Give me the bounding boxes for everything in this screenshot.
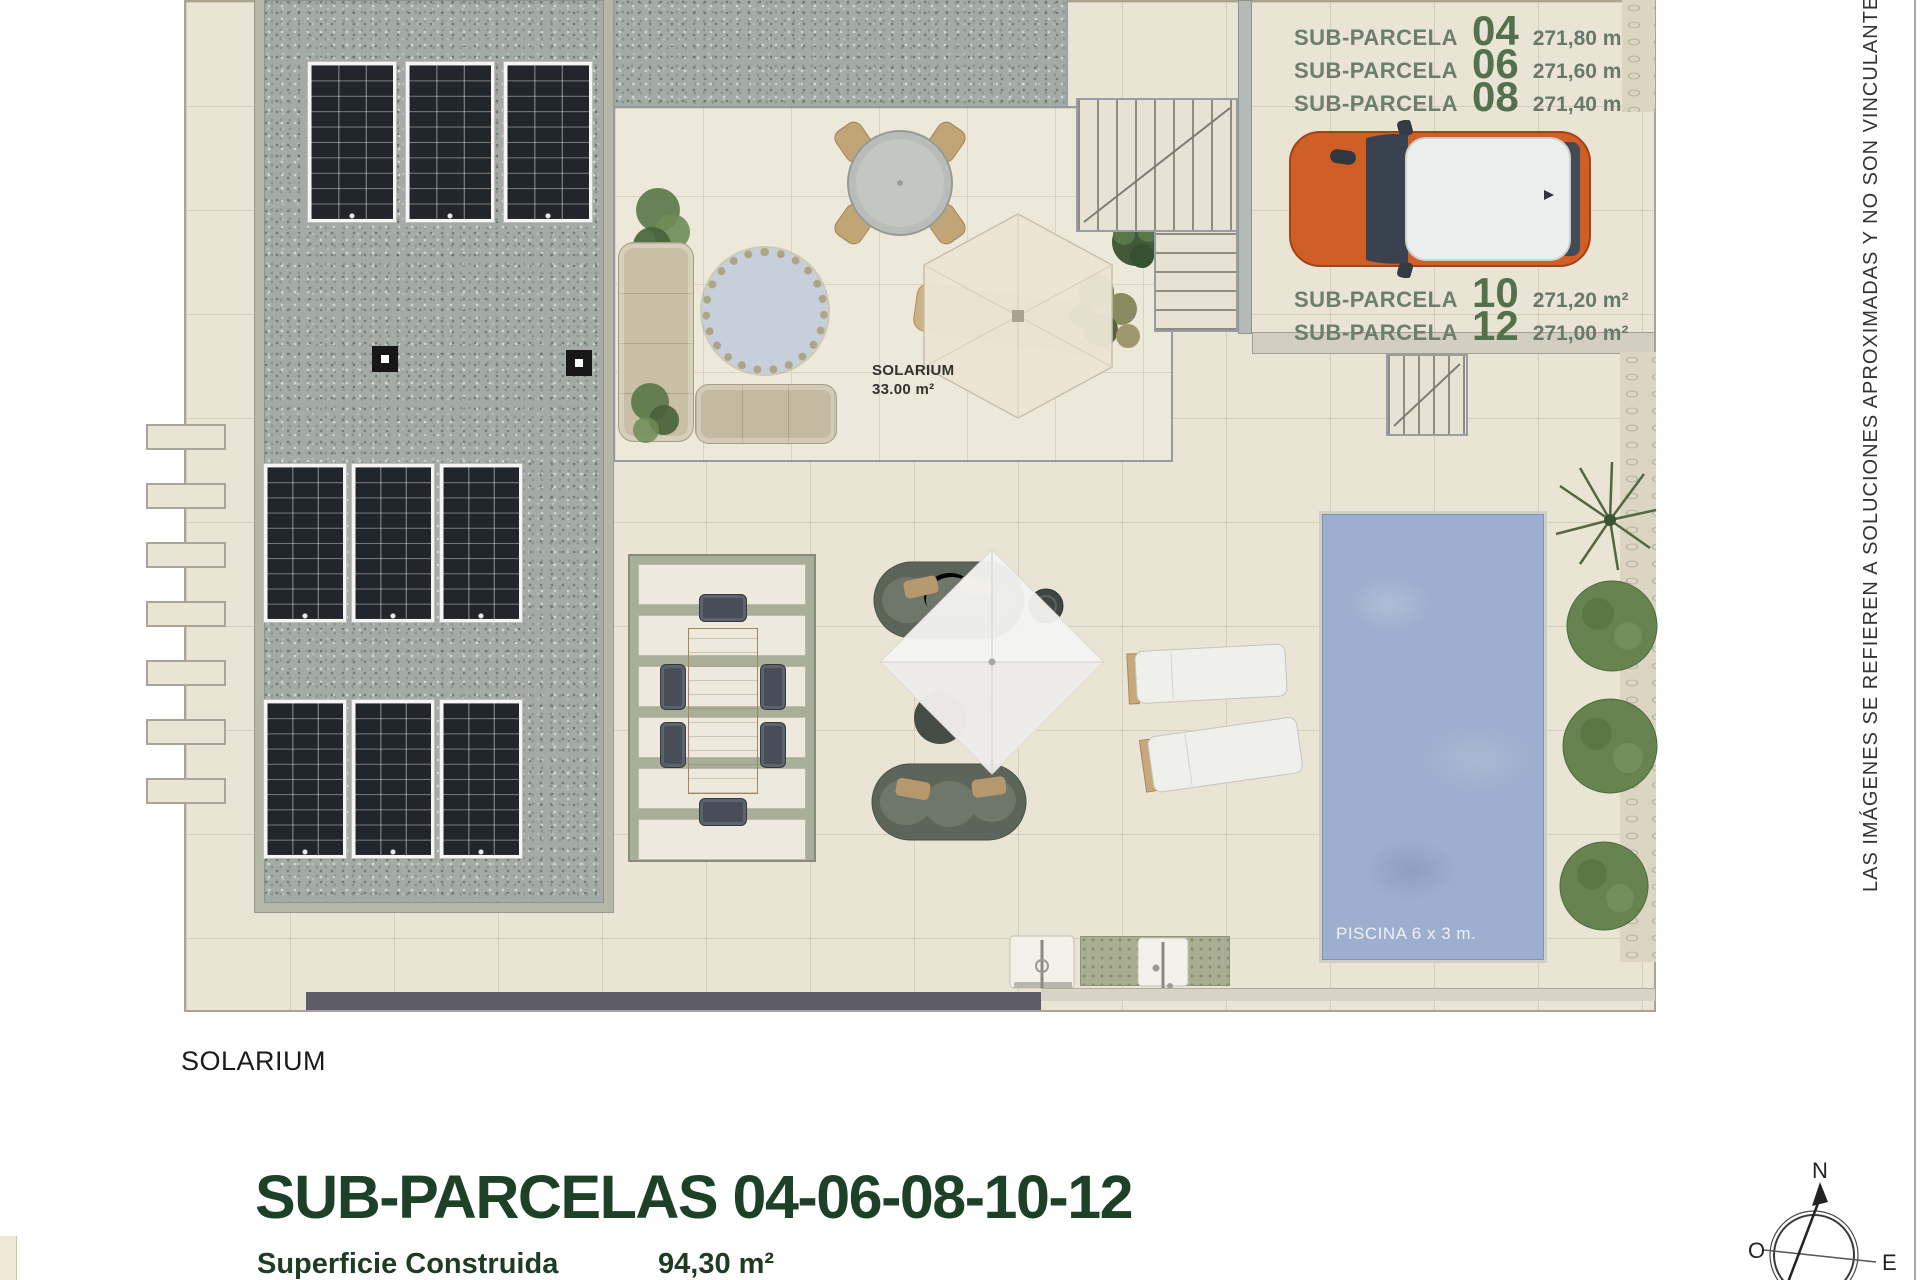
subparcela-label: SUB-PARCELA — [1294, 322, 1458, 344]
solar-panel — [440, 700, 522, 858]
disclaimer-note: LAS IMÁGENES SE REFIEREN A SOLUCIONES AP… — [1860, 0, 1883, 892]
zone-area: 33.00 m² — [872, 381, 954, 400]
solar-panel — [406, 62, 494, 222]
compass-west-label: O — [1748, 1238, 1765, 1263]
hatch-rung — [146, 601, 226, 627]
garden-trees — [1540, 438, 1660, 968]
compass-rose-icon: N O E — [1736, 1158, 1920, 1280]
wall-strip — [1238, 0, 1252, 334]
walkway-strip — [1041, 988, 1655, 1001]
dining-table — [688, 628, 758, 794]
hatch-rung — [146, 483, 226, 509]
parasol-hole — [897, 180, 903, 186]
solar-panel — [440, 464, 522, 622]
dining-chair — [760, 664, 786, 710]
round-tree — [1567, 581, 1657, 671]
hatch-rung — [146, 660, 226, 686]
hatch-rung — [146, 542, 226, 568]
sun-lounger — [1127, 644, 1288, 704]
subparcela-area: 271,00 m² — [1533, 323, 1629, 344]
subparcela-number: 12 — [1472, 305, 1519, 347]
potted-plant — [626, 378, 684, 448]
boundary-dark-bar — [306, 992, 1041, 1010]
round-tree — [1560, 842, 1648, 930]
side-staircase — [1386, 354, 1468, 436]
roof-anchor-marker — [372, 346, 398, 372]
hatch-rung — [146, 424, 226, 450]
car-top-view — [1286, 120, 1598, 278]
hatch-rung — [146, 719, 226, 745]
palm-plant — [1556, 462, 1656, 570]
staircase-lower — [1154, 232, 1238, 332]
gravel-roof-top-strip — [613, 0, 1068, 106]
solar-panel — [308, 62, 396, 222]
sofa-set — [860, 548, 1140, 858]
shower-tray — [1010, 936, 1074, 988]
round-rug — [702, 248, 828, 374]
dining-chair — [660, 722, 686, 768]
dining-chair — [699, 594, 747, 622]
dining-chair — [699, 798, 747, 826]
subparcela-label: SUB-PARCELA — [1294, 93, 1458, 115]
shower-tray — [1138, 938, 1188, 994]
solarium-zone-label: SOLARIUM 33.00 m² — [872, 362, 954, 400]
subparcela-row: SUB-PARCELA 12 271,00 m² — [1294, 305, 1628, 347]
pool-label: PISCINA 6 x 3 m. — [1336, 924, 1476, 944]
solar-panel — [264, 464, 346, 622]
page-border-line — [1914, 0, 1916, 1280]
outdoor-sofa — [872, 764, 1026, 840]
solar-panel — [504, 62, 592, 222]
subparcela-area: 271,40 m² — [1533, 94, 1629, 115]
hatch-rung — [146, 778, 226, 804]
corner-sliver — [0, 1236, 17, 1280]
stone-border-strip — [1622, 0, 1655, 112]
compass-east-label: E — [1882, 1250, 1897, 1275]
compass-north-label: N — [1812, 1158, 1828, 1183]
roof-anchor-marker — [566, 350, 592, 376]
subparcela-number: 08 — [1472, 76, 1519, 118]
lounge-sofa-horizontal — [695, 384, 837, 444]
superficie-label: Superficie Construida — [257, 1248, 558, 1280]
page: SOLARIUM 33.00 m² SUB-PARCELA 04 271,80 … — [0, 0, 1920, 1280]
sun-loungers — [1126, 634, 1311, 809]
car-windshield — [1366, 134, 1408, 264]
subparcela-row: SUB-PARCELA 08 271,40 m² — [1294, 76, 1628, 118]
dining-chair — [660, 664, 686, 710]
dining-chair — [760, 722, 786, 768]
sun-lounger — [1139, 717, 1303, 794]
zone-name: SOLARIUM — [872, 362, 954, 381]
solar-panel — [352, 700, 434, 858]
page-title: SUB-PARCELAS 04-06-08-10-12 — [255, 1162, 1132, 1232]
swimming-pool — [1322, 514, 1544, 960]
round-tree — [1563, 699, 1657, 793]
solar-panel — [264, 700, 346, 858]
level-caption: SOLARIUM — [181, 1046, 326, 1077]
staircase-upper — [1076, 98, 1238, 232]
solar-panel — [352, 464, 434, 622]
superficie-value: 94,30 m² — [658, 1248, 774, 1280]
